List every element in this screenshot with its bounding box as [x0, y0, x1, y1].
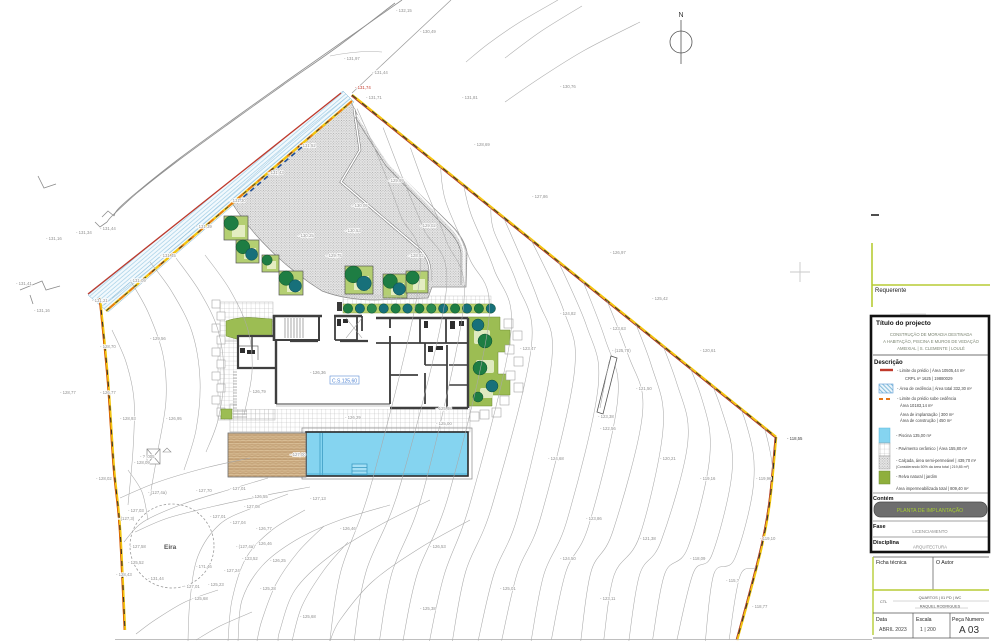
svg-text:- 131,16: - 131,16: [34, 308, 50, 313]
svg-text:- ? ,005: - ? ,005: [140, 454, 155, 459]
svg-text:- 125,98: - 125,98: [436, 406, 452, 411]
svg-text:- 125,68: - 125,68: [300, 614, 316, 619]
svg-text:- 126,46: - 126,46: [256, 541, 272, 546]
svg-text:CTL: CTL: [880, 600, 887, 604]
svg-text:- 127,13: - 127,13: [310, 496, 326, 501]
svg-text:- 123,86: - 123,86: [586, 516, 602, 521]
svg-text:- 125,00: - 125,00: [436, 421, 452, 426]
svg-text:- 131,52: - 131,52: [300, 143, 316, 148]
svg-text:- 127,03: - 127,03: [128, 508, 144, 513]
svg-text:- 128,77: - 128,77: [60, 390, 76, 395]
svg-text:- 127,58: - 127,58: [130, 544, 146, 549]
svg-text:Peça Numero: Peça Numero: [952, 617, 984, 623]
svg-text:QUARTOS | 01 PD | WC: QUARTOS | 01 PD | WC: [919, 595, 962, 600]
svg-text:- 118,09: - 118,09: [690, 556, 706, 561]
svg-text:- 125,42: - 125,42: [652, 296, 668, 301]
svg-text:- 129,75: - 129,75: [326, 253, 342, 258]
svg-text:- 130,05: - 130,05: [352, 203, 368, 208]
svg-text:- (127,3): - (127,3): [118, 516, 135, 521]
svg-text:- 131,41: - 131,41: [16, 281, 32, 286]
svg-text:- 120,61: - 120,61: [700, 348, 716, 353]
svg-text:- 119,16: - 119,16: [700, 476, 716, 481]
svg-text:- 127,70: - 127,70: [196, 488, 212, 493]
svg-text:Ficha técnica: Ficha técnica: [876, 560, 907, 566]
svg-text:- 127,01: - 127,01: [184, 584, 200, 589]
svg-text:Disciplina: Disciplina: [873, 540, 900, 546]
svg-text:- 125,28: - 125,28: [260, 586, 276, 591]
svg-text:- Piscina 135,00 m²: - Piscina 135,00 m²: [896, 433, 932, 438]
svg-text:- 131,44: - 131,44: [100, 226, 116, 231]
svg-text:- 128,43: - 128,43: [116, 572, 132, 577]
svg-text:- 131,81: - 131,81: [462, 95, 478, 100]
svg-text:Área de construção | 450 m²: Área de construção | 450 m²: [900, 418, 952, 423]
svg-text:- 119,96: - 119,96: [756, 476, 772, 481]
svg-text:1 | 200: 1 | 200: [920, 627, 936, 633]
svg-text:- (127,4a): - (127,4a): [148, 490, 167, 495]
svg-text:- 126,25: - 126,25: [270, 558, 286, 563]
svg-text:RAQUEL RODRIGUES: RAQUEL RODRIGUES: [920, 604, 961, 609]
svg-text:- 123,11: - 123,11: [600, 596, 616, 601]
svg-text:N: N: [678, 12, 683, 19]
svg-text:Área impermeabilizada total |: Área impermeabilizada total | 809,40 m²: [896, 486, 969, 491]
svg-text:LICENCIAMENTO: LICENCIAMENTO: [912, 529, 948, 534]
svg-text:- 123,52: - 123,52: [242, 556, 258, 561]
svg-text:- 121,38: - 121,38: [640, 536, 656, 541]
svg-text:Título do projecto: Título do projecto: [876, 320, 931, 327]
svg-text:C.S.125,60: C.S.125,60: [332, 378, 357, 384]
svg-text:Contém: Contém: [873, 496, 894, 502]
svg-text:- 131,43: - 131,43: [268, 170, 284, 175]
svg-text:- 131,34: - 131,34: [76, 230, 92, 235]
svg-text:- 128,09: - 128,09: [134, 460, 150, 465]
svg-text:- 130,53: - 130,53: [345, 228, 361, 233]
svg-text:- 118,55: - 118,55: [787, 436, 803, 441]
svg-text:- 122,56: - 122,56: [600, 426, 616, 431]
svg-text:- 131,45: - 131,45: [160, 253, 176, 258]
svg-text:- 129,99: - 129,99: [388, 178, 404, 183]
svg-text:- 123,47: - 123,47: [520, 346, 536, 351]
svg-text:- 121,50: - 121,50: [636, 386, 652, 391]
svg-text:- 128,82: - 128,82: [408, 253, 424, 258]
svg-text:- 126,55: - 126,55: [252, 494, 268, 499]
svg-text:- 115,?: - 115,?: [726, 578, 740, 583]
svg-text:CONSTRUÇÃO DE MORADIA DESTINAD: CONSTRUÇÃO DE MORADIA DESTINADA: [890, 332, 973, 337]
svg-text:- 131,39: - 131,39: [196, 224, 212, 229]
svg-text:- 126,46: - 126,46: [340, 526, 356, 531]
svg-text:- 124,82: - 124,82: [560, 311, 576, 316]
svg-text:- 131,30: - 131,30: [230, 198, 246, 203]
svg-text:- 128,69: - 128,69: [474, 142, 490, 147]
svg-text:- 127,01: - 127,01: [230, 486, 246, 491]
svg-text:- 129,02: - 129,02: [420, 223, 436, 228]
svg-text:- 120,21: - 120,21: [660, 456, 676, 461]
svg-text:ARQUITECTURA: ARQUITECTURA: [913, 545, 947, 550]
svg-text:- 129,56: - 129,56: [150, 336, 166, 341]
svg-text:- Pavimento cerâmico | Área 1: - Pavimento cerâmico | Área 155,80 m²: [896, 446, 968, 451]
svg-text:- 124,50: - 124,50: [560, 556, 576, 561]
svg-text:- 125,68: - 125,68: [192, 596, 208, 601]
svg-text:(Considerando 50% da área tota: (Considerando 50% da área total | 219,85…: [896, 465, 969, 469]
svg-text:Descrição: Descrição: [874, 360, 903, 366]
svg-text:- 131,44: - 131,44: [148, 576, 164, 581]
svg-text:- Relva natural | jardim: - Relva natural | jardim: [896, 474, 938, 479]
svg-text:- 128,93: - 128,93: [120, 416, 136, 421]
svg-text:- 126,79: - 126,79: [250, 389, 266, 394]
svg-text:- 126,36: - 126,36: [310, 370, 326, 375]
svg-text:- 126,77: - 126,77: [256, 526, 272, 531]
svg-text:- 126,29: - 126,29: [345, 415, 361, 420]
svg-text:- Calçada, área semi-permeável: - Calçada, área semi-permeável | 439,70 …: [896, 458, 977, 463]
svg-text:- 131,71: - 131,71: [366, 95, 382, 100]
svg-text:Data: Data: [876, 617, 887, 623]
svg-text:- Limite do prédio sobe cedênc: - Limite do prédio sobe cedência: [897, 396, 957, 401]
svg-text:- 123,63: - 123,63: [610, 326, 626, 331]
svg-text:- 127,01: - 127,01: [210, 514, 226, 519]
svg-text:- 127,00: - 127,00: [290, 452, 306, 457]
svg-text:- 127,24: - 127,24: [224, 568, 240, 573]
svg-text:- Área de cedência | Área tot: - Área de cedência | Área total 332,30 m…: [897, 386, 972, 391]
svg-text:- 131,97: - 131,97: [344, 56, 360, 61]
svg-text:- 126,53: - 126,53: [430, 544, 446, 549]
svg-text:- (125,78): - (125,78): [612, 348, 631, 353]
svg-text:- 125,52: - 125,52: [128, 560, 144, 565]
svg-text:- 126,77: - 126,77: [100, 390, 116, 395]
svg-text:- 131,44: - 131,44: [372, 70, 388, 75]
svg-text:A 03: A 03: [959, 625, 979, 636]
svg-text:- 130,76: - 130,76: [560, 84, 576, 89]
svg-text:- 131,21: - 131,21: [92, 298, 108, 303]
svg-text:- 127,08: - 127,08: [244, 504, 260, 509]
svg-text:- 131,09: - 131,09: [130, 278, 146, 283]
svg-text:PLANTA DE IMPLANTAÇÃO: PLANTA DE IMPLANTAÇÃO: [897, 507, 963, 514]
svg-text:- 127,04: - 127,04: [230, 520, 246, 525]
svg-text:- 128,70: - 128,70: [100, 344, 116, 349]
svg-text:ABRIL 2023: ABRIL 2023: [879, 627, 907, 633]
svg-text:- 131,74: - 131,74: [355, 85, 371, 90]
svg-text:- 131,16: - 131,16: [46, 236, 62, 241]
svg-text:- 132,15: - 132,15: [396, 8, 412, 13]
svg-text:CRPL nº 1625 | 19880029: CRPL nº 1625 | 19880029: [905, 376, 953, 381]
svg-text:- 125,01: - 125,01: [500, 586, 516, 591]
svg-text:A HABITAÇÃO, PISCINA E MUROS D: A HABITAÇÃO, PISCINA E MUROS DE VEDAÇÃO: [883, 339, 980, 344]
svg-text:Escala: Escala: [916, 617, 932, 623]
svg-text:O Autor: O Autor: [936, 560, 954, 566]
svg-text:AMEIXIAL | S. CLEMENTE | L: AMEIXIAL | S. CLEMENTE | LOULÉ: [897, 346, 965, 351]
svg-text:- 130,25: - 130,25: [298, 233, 314, 238]
svg-text:- 118,77: - 118,77: [752, 604, 768, 609]
svg-text:- 130,49: - 130,49: [420, 29, 436, 34]
svg-text:Área 10183,14 m²: Área 10183,14 m²: [900, 403, 933, 408]
svg-text:- 128,02: - 128,02: [96, 476, 112, 481]
svg-text:- 125,23: - 125,23: [208, 582, 224, 587]
svg-text:- 123,38: - 123,38: [598, 414, 614, 419]
svg-text:- 126,95: - 126,95: [166, 416, 182, 421]
svg-text:- Limite do prédio | Área 105: - Limite do prédio | Área 10505,44 m²: [897, 368, 965, 373]
svg-text:- (127,4a): - (127,4a): [236, 544, 255, 549]
svg-text:- 124,68: - 124,68: [548, 456, 564, 461]
svg-text:- 126,97: - 126,97: [610, 250, 626, 255]
svg-text:Fase: Fase: [873, 524, 886, 530]
svg-text:- 119,10: - 119,10: [760, 536, 776, 541]
svg-text:Eira: Eira: [164, 544, 177, 551]
svg-text:Requerente: Requerente: [875, 288, 907, 294]
svg-text:- 125,38: - 125,38: [420, 606, 436, 611]
svg-text:- 127,86: - 127,86: [532, 194, 548, 199]
svg-text:- 1?1,46: - 1?1,46: [196, 564, 212, 569]
svg-text:Área de implantação | 300 m²: Área de implantação | 300 m²: [900, 412, 954, 417]
